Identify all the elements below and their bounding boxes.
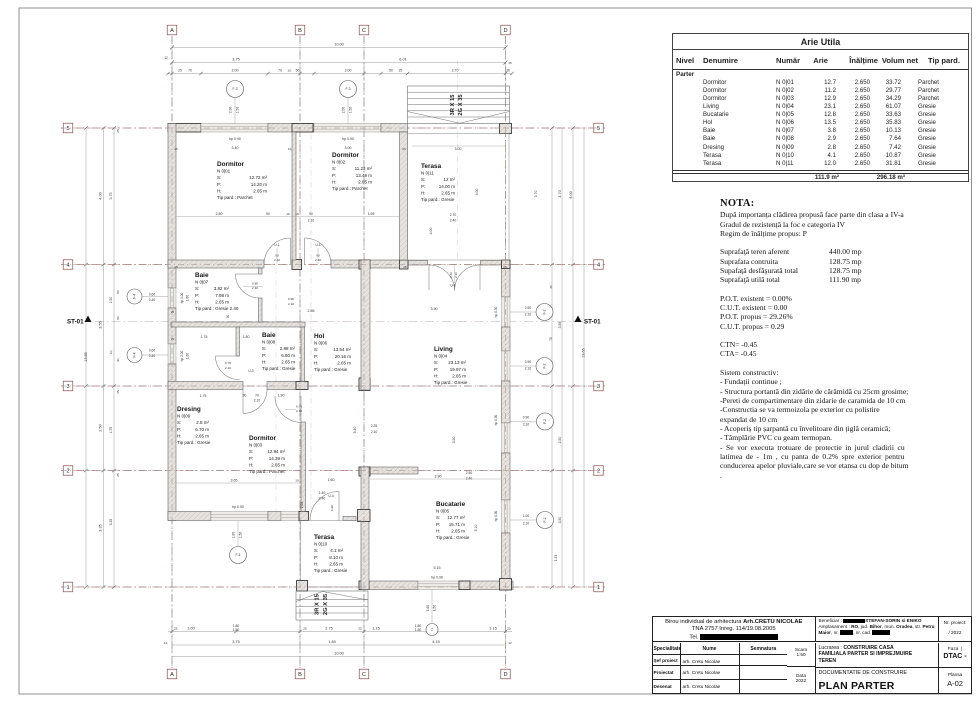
svg-text:2.40: 2.40: [450, 219, 457, 223]
svg-text:3.90: 3.90: [431, 307, 438, 311]
svg-text:Baie: Baie: [195, 272, 209, 279]
svg-text:Tip pard.: Gresie: Tip pard.: Gresie: [262, 366, 296, 371]
svg-text:25: 25: [503, 265, 507, 269]
svg-text:25: 25: [116, 390, 120, 394]
svg-text:1.00: 1.00: [523, 514, 530, 518]
svg-text:2.10: 2.10: [525, 313, 532, 317]
svg-text:25: 25: [358, 627, 362, 631]
svg-text:30: 30: [549, 285, 553, 289]
svg-text:2.50: 2.50: [558, 437, 562, 444]
svg-text:Tip pard.: Parchet: Tip pard.: Parchet: [332, 186, 368, 191]
svg-text:F-3: F-3: [345, 87, 350, 91]
svg-text:S:: S:: [177, 420, 181, 425]
svg-text:1.60: 1.60: [328, 478, 335, 482]
svg-text:25: 25: [174, 147, 178, 151]
svg-text:N 0|02: N 0|02: [332, 160, 346, 165]
svg-text:Hol: Hol: [314, 333, 325, 340]
svg-text:N 0|09: N 0|09: [177, 414, 191, 419]
svg-text:2.05: 2.05: [300, 502, 304, 509]
svg-text:hp 0.90: hp 0.90: [232, 505, 244, 509]
svg-text:N 0|04: N 0|04: [434, 354, 448, 359]
svg-text:hp 0.90: hp 0.90: [342, 137, 354, 141]
svg-text:0.80: 0.80: [252, 282, 258, 286]
svg-text:2.65 m: 2.65 m: [451, 529, 465, 534]
svg-text:Tip pard.: Gresie: Tip pard.: Gresie: [177, 440, 211, 445]
svg-text:10.00: 10.00: [334, 43, 344, 47]
svg-text:19.97 m: 19.97 m: [450, 367, 467, 372]
svg-text:1.50: 1.50: [109, 297, 113, 304]
svg-text:P:: P:: [195, 293, 199, 298]
svg-text:2G X 35: 2G X 35: [458, 94, 464, 116]
svg-text:C: C: [362, 672, 366, 678]
svg-text:H:: H:: [421, 191, 426, 196]
svg-text:3.50: 3.50: [558, 517, 562, 524]
svg-text:hp 0.30: hp 0.30: [494, 306, 498, 317]
svg-text:S:: S:: [314, 347, 318, 352]
svg-text:1.80: 1.80: [232, 532, 236, 539]
svg-text:Tip pard.: Parchet: Tip pard.: Parchet: [249, 469, 285, 474]
svg-text:2.70: 2.70: [450, 213, 457, 217]
svg-text:Tip pard.: Gresie: Tip pard.: Gresie: [314, 367, 348, 372]
svg-text:N 0|10: N 0|10: [314, 542, 328, 547]
svg-text:Tip pard.: Parchet: Tip pard.: Parchet: [217, 195, 253, 200]
svg-text:3.00: 3.00: [345, 146, 352, 150]
svg-text:2.65 m: 2.65 m: [271, 463, 285, 468]
svg-text:H:: H:: [195, 300, 200, 305]
svg-text:S:: S:: [332, 166, 336, 171]
svg-text:4.15: 4.15: [432, 640, 439, 644]
svg-text:D: D: [503, 28, 507, 34]
svg-text:2.25: 2.25: [371, 424, 378, 428]
svg-text:F-2: F-2: [543, 419, 547, 424]
svg-text:hp 0.30: hp 0.30: [494, 510, 498, 521]
svg-text:2.10: 2.10: [274, 258, 280, 262]
svg-text:2.10: 2.10: [454, 272, 458, 278]
svg-text:90: 90: [266, 212, 270, 216]
svg-text:1.75: 1.75: [201, 335, 208, 339]
svg-text:P:: P:: [262, 353, 266, 358]
svg-text:2.10: 2.10: [308, 219, 315, 223]
svg-text:15.71 m: 15.71 m: [449, 522, 466, 527]
svg-text:1.15: 1.15: [489, 627, 496, 631]
svg-text:2.40: 2.40: [466, 477, 473, 481]
svg-text:2.65 m: 2.65 m: [215, 300, 229, 305]
svg-text:2.10: 2.10: [315, 258, 321, 262]
svg-text:2.10: 2.10: [254, 399, 260, 403]
svg-text:12 m²: 12 m²: [443, 177, 455, 182]
svg-text:2.65 m: 2.65 m: [195, 434, 209, 439]
svg-text:50: 50: [296, 69, 300, 73]
svg-text:ST-01: ST-01: [584, 319, 601, 326]
svg-text:1.60: 1.60: [426, 605, 430, 611]
svg-text:10: 10: [295, 479, 299, 483]
svg-text:15: 15: [508, 61, 512, 65]
svg-text:2: 2: [597, 469, 600, 475]
svg-text:12.77 m²: 12.77 m²: [447, 515, 465, 520]
svg-text:12: 12: [508, 641, 512, 645]
svg-text:P:: P:: [434, 367, 438, 372]
svg-text:3.75: 3.75: [109, 193, 113, 200]
svg-text:0.90: 0.90: [288, 297, 294, 301]
svg-text:H:: H:: [314, 562, 319, 567]
svg-text:10.00: 10.00: [334, 652, 344, 656]
svg-text:3.50: 3.50: [452, 437, 456, 444]
svg-text:0.60: 0.60: [149, 348, 156, 352]
svg-text:F-2: F-2: [543, 363, 547, 368]
svg-text:H:: H:: [332, 180, 337, 185]
svg-text:0.40: 0.40: [149, 298, 156, 302]
svg-text:hp 2.00: hp 2.00: [180, 350, 184, 361]
svg-text:90: 90: [226, 315, 230, 319]
svg-text:2.85: 2.85: [308, 309, 315, 313]
svg-text:15: 15: [295, 212, 299, 216]
svg-text:3.00: 3.00: [455, 147, 462, 151]
svg-text:4: 4: [597, 263, 600, 269]
svg-text:2.65 m: 2.65 m: [253, 189, 267, 194]
svg-text:3.35: 3.35: [99, 524, 103, 531]
svg-text:1.50: 1.50: [239, 532, 243, 539]
svg-text:2.40: 2.40: [449, 272, 453, 278]
svg-text:2.65 m: 2.65 m: [358, 180, 372, 185]
svg-text:25: 25: [171, 337, 175, 341]
svg-text:5: 5: [597, 126, 600, 132]
svg-text:0.90: 0.90: [330, 505, 334, 511]
svg-text:12,: 12,: [164, 641, 168, 645]
svg-text:B: B: [298, 672, 302, 678]
svg-text:2.00: 2.00: [342, 107, 346, 114]
svg-text:S:: S:: [195, 286, 199, 291]
svg-text:2.65 m: 2.65 m: [281, 360, 295, 365]
svg-text:H:: H:: [436, 529, 441, 534]
svg-text:Dormitor: Dormitor: [217, 161, 244, 168]
svg-text:S:: S:: [421, 177, 425, 182]
svg-text:P:: P:: [314, 354, 318, 359]
svg-text:25: 25: [174, 265, 178, 269]
svg-text:U-1: U-1: [274, 243, 279, 247]
svg-text:1.31: 1.31: [554, 555, 558, 561]
svg-text:25: 25: [507, 627, 511, 631]
svg-text:90: 90: [243, 394, 247, 398]
svg-text:H:: H:: [249, 463, 254, 468]
svg-text:1.50: 1.50: [349, 107, 353, 114]
svg-text:S:: S:: [436, 515, 440, 520]
svg-text:Terasa: Terasa: [421, 163, 442, 170]
svg-text:H:: H:: [314, 361, 319, 366]
svg-text:10,: 10,: [288, 147, 292, 151]
svg-text:0.90: 0.90: [525, 306, 532, 310]
svg-text:F-2: F-2: [543, 309, 547, 314]
svg-text:25: 25: [116, 473, 120, 477]
svg-text:23.13 m²: 23.13 m²: [448, 360, 466, 365]
svg-text:14.39 m: 14.39 m: [269, 456, 286, 461]
svg-text:3.55: 3.55: [558, 322, 562, 329]
svg-text:50: 50: [116, 316, 120, 320]
svg-text:4.00: 4.00: [475, 189, 479, 196]
svg-text:12: 12: [164, 56, 168, 60]
svg-text:P:: P:: [314, 555, 318, 560]
svg-text:Tip pard.: Gresie: Tip pard.: Gresie: [314, 568, 348, 573]
svg-text:25,: 25,: [174, 627, 178, 631]
svg-text:N 0|06: N 0|06: [314, 341, 328, 346]
svg-text:Terasa: Terasa: [314, 534, 335, 541]
svg-text:13.54 m²: 13.54 m²: [333, 347, 351, 352]
svg-text:1.15: 1.15: [372, 627, 379, 631]
svg-text:70: 70: [188, 69, 192, 73]
svg-text:H:: H:: [434, 374, 439, 379]
svg-text:70: 70: [278, 69, 282, 73]
svg-text:10: 10: [286, 212, 290, 216]
svg-text:3.75: 3.75: [232, 58, 239, 62]
svg-text:1.50: 1.50: [415, 628, 422, 632]
svg-text:P:: P:: [249, 456, 253, 461]
svg-text:3: 3: [66, 384, 69, 390]
svg-text:1.75: 1.75: [109, 427, 113, 434]
svg-text:25: 25: [303, 627, 307, 631]
svg-text:F-4: F-4: [133, 352, 137, 357]
svg-text:4: 4: [66, 263, 69, 269]
svg-text:N 0|03: N 0|03: [249, 443, 263, 448]
svg-text:A: A: [170, 672, 174, 678]
svg-text:N 0|08: N 0|08: [262, 340, 276, 345]
svg-text:3.90: 3.90: [435, 475, 442, 479]
svg-text:N 0|11: N 0|11: [421, 171, 434, 176]
svg-text:12.94 m²: 12.94 m²: [267, 449, 285, 454]
svg-text:2.10: 2.10: [225, 366, 231, 370]
svg-text:30: 30: [506, 69, 510, 73]
svg-text:6.01: 6.01: [399, 58, 406, 62]
svg-text:Dormitor: Dormitor: [332, 152, 359, 159]
svg-text:2.10: 2.10: [525, 367, 532, 371]
svg-text:3R X 15: 3R X 15: [450, 94, 456, 116]
svg-text:4.00: 4.00: [429, 228, 433, 235]
svg-text:1: 1: [66, 585, 69, 591]
svg-text:S:: S:: [314, 548, 318, 553]
svg-text:40,: 40,: [116, 358, 120, 362]
svg-text:3: 3: [597, 384, 600, 390]
svg-text:0.60: 0.60: [149, 292, 156, 296]
svg-text:8.10 m: 8.10 m: [329, 555, 343, 560]
svg-text:A: A: [170, 28, 174, 34]
svg-text:3.40: 3.40: [232, 146, 239, 150]
svg-text:H:: H:: [217, 189, 222, 194]
svg-text:1.40: 1.40: [319, 491, 326, 495]
svg-text:N 0|05: N 0|05: [436, 509, 450, 514]
svg-text:2.65 m: 2.65 m: [329, 562, 343, 567]
svg-text:1: 1: [597, 585, 600, 591]
svg-text:3.70: 3.70: [558, 190, 562, 197]
svg-text:25: 25: [402, 147, 406, 151]
svg-text:2.10: 2.10: [252, 286, 258, 290]
svg-text:25: 25: [116, 129, 120, 133]
svg-text:Baie: Baie: [262, 332, 276, 339]
svg-text:F-4: F-4: [133, 294, 137, 299]
svg-text:12.72 m²: 12.72 m²: [249, 175, 267, 180]
svg-text:Tip pard.: Gresie: Tip pard.: Gresie: [436, 535, 470, 540]
svg-text:2: 2: [66, 469, 69, 475]
svg-text:S:: S:: [249, 449, 253, 454]
svg-text:13.65: 13.65: [84, 352, 88, 362]
svg-text:2.10: 2.10: [371, 430, 378, 434]
svg-text:2.65 m: 2.65 m: [337, 361, 351, 366]
svg-text:0.90: 0.90: [523, 416, 530, 420]
svg-text:14.20 m: 14.20 m: [251, 182, 268, 187]
svg-text:25: 25: [399, 69, 403, 73]
svg-text:2.10: 2.10: [523, 423, 530, 427]
svg-text:Tip pard.: Gresie: Tip pard.: Gresie: [421, 197, 455, 202]
svg-text:3.55: 3.55: [99, 321, 103, 328]
svg-text:0.40: 0.40: [149, 354, 156, 358]
svg-text:1.60: 1.60: [186, 295, 190, 301]
svg-text:1.50: 1.50: [433, 605, 437, 611]
svg-text:2.40: 2.40: [319, 497, 326, 501]
svg-text:H:: H:: [262, 360, 267, 365]
svg-text:25: 25: [403, 265, 407, 269]
svg-text:0.90: 0.90: [296, 405, 302, 409]
svg-text:3.82 m²: 3.82 m²: [214, 286, 230, 291]
svg-text:1.00: 1.00: [187, 627, 194, 631]
svg-text:2.50: 2.50: [216, 212, 223, 216]
svg-text:P:: P:: [436, 522, 440, 527]
svg-text:N 0|07: N 0|07: [195, 280, 209, 285]
svg-text:P:: P:: [177, 427, 181, 432]
svg-text:1.50: 1.50: [236, 107, 240, 114]
svg-text:70: 70: [255, 394, 259, 398]
svg-text:4.00: 4.00: [99, 192, 103, 199]
svg-text:5: 5: [66, 126, 69, 132]
svg-text:ST-01: ST-01: [67, 319, 84, 326]
svg-text:F-2: F-2: [543, 517, 547, 522]
svg-text:2.8 m²: 2.8 m²: [196, 420, 209, 425]
svg-text:25: 25: [171, 310, 175, 314]
svg-text:P:: P:: [421, 184, 425, 189]
svg-text:3.75: 3.75: [232, 640, 239, 644]
svg-text:2G X 35: 2G X 35: [323, 593, 329, 615]
svg-text:1.85: 1.85: [328, 640, 335, 644]
svg-text:S:: S:: [434, 360, 438, 365]
svg-text:Tip pard.: Gresie 2.40: Tip pard.: Gresie 2.40: [195, 306, 239, 311]
svg-text:10,: 10,: [109, 350, 113, 354]
svg-text:1.90: 1.90: [278, 394, 285, 398]
svg-text:5.15: 5.15: [434, 566, 441, 570]
svg-text:0.90: 0.90: [525, 360, 532, 364]
svg-text:P:: P:: [217, 182, 221, 187]
svg-text:3.70: 3.70: [534, 191, 538, 198]
svg-text:Tip pard.: Gresie .: Tip pard.: Gresie .: [434, 380, 470, 385]
svg-text:Dormitor: Dormitor: [249, 435, 276, 442]
svg-text:20.16 m: 20.16 m: [335, 354, 352, 359]
svg-text:10,: 10,: [287, 69, 291, 73]
svg-text:2.10: 2.10: [523, 522, 530, 526]
svg-text:13.65: 13.65: [582, 348, 586, 358]
svg-text:7.98 m: 7.98 m: [215, 293, 229, 298]
svg-text:2.65 m: 2.65 m: [441, 191, 455, 196]
svg-text:H:: H:: [177, 434, 182, 439]
svg-text:3R X 15: 3R X 15: [315, 593, 321, 615]
svg-text:1.60: 1.60: [186, 353, 190, 359]
svg-text:4.00: 4.00: [569, 191, 573, 198]
svg-text:5.10: 5.10: [474, 525, 478, 532]
svg-text:2.00: 2.00: [229, 107, 233, 114]
svg-text:2.00: 2.00: [345, 69, 352, 73]
svg-text:2.50: 2.50: [466, 471, 473, 475]
svg-text:S:: S:: [217, 175, 221, 180]
svg-text:C: C: [362, 28, 366, 34]
svg-text:2.75: 2.75: [325, 627, 332, 631]
svg-text:70: 70: [549, 337, 553, 341]
svg-text:50: 50: [116, 290, 120, 294]
svg-text:4.1 m²: 4.1 m²: [330, 548, 343, 553]
svg-text:1.50: 1.50: [233, 628, 240, 632]
svg-text:Dresing: Dresing: [177, 406, 201, 413]
svg-text:2.50: 2.50: [99, 424, 103, 431]
svg-text:U-3: U-3: [248, 369, 253, 373]
svg-text:hp 0.90: hp 0.90: [229, 137, 241, 141]
svg-text:2.65 m: 2.65 m: [452, 374, 466, 379]
svg-text:Living: Living: [434, 346, 453, 353]
svg-text:2.10: 2.10: [296, 409, 302, 413]
svg-text:U-4: U-4: [328, 494, 333, 498]
svg-text:0.75: 0.75: [225, 361, 231, 365]
svg-text:F-3: F-3: [232, 87, 237, 91]
svg-text:3.65: 3.65: [231, 479, 238, 483]
svg-text:2.00: 2.00: [232, 69, 239, 73]
svg-text:U-8: U-8: [450, 284, 455, 288]
svg-text:6.70 m: 6.70 m: [195, 427, 209, 432]
svg-text:1.75: 1.75: [200, 394, 207, 398]
svg-text:2: 2: [431, 628, 433, 632]
svg-text:F-1: F-1: [235, 553, 240, 557]
svg-text:11.23 m²: 11.23 m²: [355, 166, 373, 171]
svg-text:25: 25: [178, 69, 182, 73]
svg-text:S:: S:: [262, 346, 266, 351]
svg-text:14.00 m: 14.00 m: [439, 184, 456, 189]
svg-text:hp 0.90: hp 0.90: [431, 576, 443, 580]
svg-text:N 0|01: N 0|01: [217, 169, 231, 174]
svg-text:D: D: [503, 672, 507, 678]
svg-text:1.80: 1.80: [243, 335, 250, 339]
svg-text:50: 50: [389, 69, 393, 73]
svg-text:2.10: 2.10: [288, 302, 294, 306]
svg-text:Bucatarie: Bucatarie: [436, 501, 466, 508]
svg-text:hp 1.00: hp 1.00: [180, 292, 184, 303]
svg-text:5.40: 5.40: [353, 427, 357, 434]
svg-text:90: 90: [309, 212, 313, 216]
svg-text:U-1: U-1: [315, 243, 320, 247]
svg-text:P:: P:: [332, 173, 336, 178]
svg-text:3.35: 3.35: [109, 519, 113, 526]
svg-text:2.88 m²: 2.88 m²: [280, 346, 296, 351]
svg-text:B: B: [298, 28, 302, 34]
svg-text:2.70: 2.70: [452, 69, 459, 73]
svg-text:1.95: 1.95: [368, 212, 375, 216]
svg-text:6.80 m: 6.80 m: [281, 353, 295, 358]
svg-text:hp 0.30: hp 0.30: [494, 414, 498, 425]
